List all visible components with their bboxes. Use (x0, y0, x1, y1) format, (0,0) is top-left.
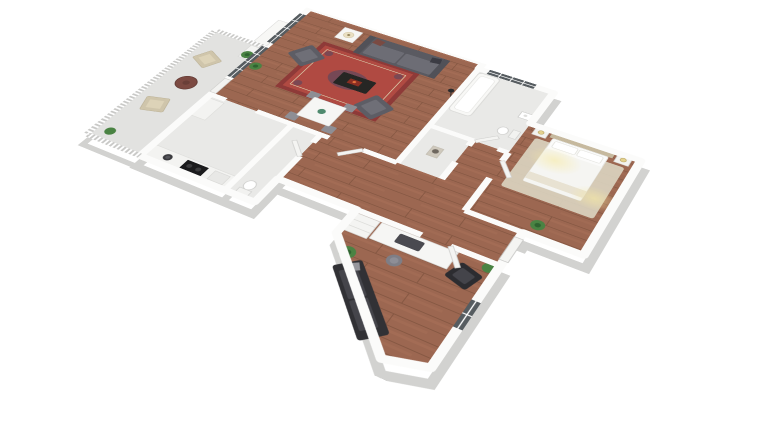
apartment-3d-floorplan (0, 0, 707, 432)
floorplan-viewport (0, 0, 768, 432)
